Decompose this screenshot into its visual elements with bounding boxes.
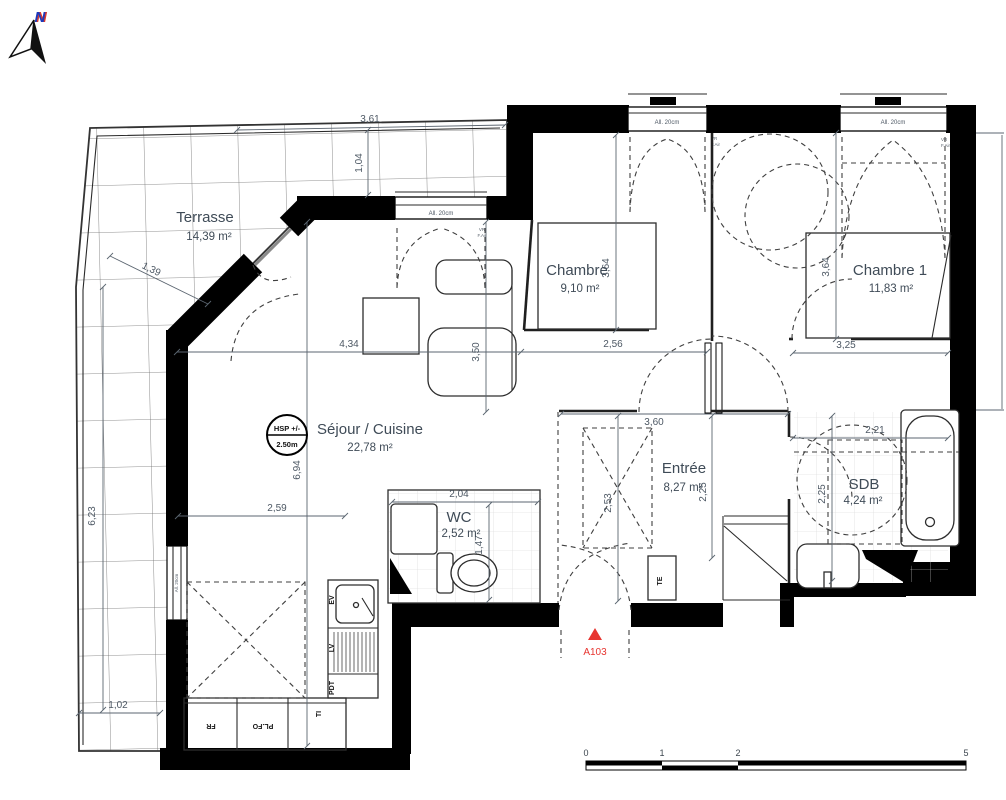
dim-chambre-width: 2,56 [603, 339, 623, 350]
room-area-terrasse: 14,39 m² [186, 231, 232, 243]
closet-cross-entree [583, 428, 652, 548]
north-letter: N [35, 9, 47, 26]
north-arrow: N N [10, 9, 48, 64]
svg-text:3,64: 3,64 [821, 257, 832, 277]
kitchen-oven-label: PL.FO [252, 722, 273, 729]
scale-tick-0: 0 [583, 748, 588, 758]
window-sill-label: All. 20cm [429, 211, 454, 217]
room-area-wc: 2,52 m² [442, 528, 481, 540]
svg-text:1,02: 1,02 [108, 700, 128, 711]
svg-text:1,04: 1,04 [354, 153, 365, 173]
room-area-sdb: 4,24 m² [844, 495, 883, 507]
svg-text:3,61: 3,61 [360, 114, 380, 125]
north-arrow-outline [10, 20, 34, 57]
room-area-chambre: 9,10 m² [561, 283, 600, 295]
ceiling-height-badge: HSP +/- 2.50m [267, 415, 307, 455]
room-label-terrasse: Terrasse [176, 209, 234, 226]
kitchen-sink [336, 585, 374, 623]
dim-sejour-depth: 3,50 [471, 219, 489, 415]
svg-text:2,04: 2,04 [449, 489, 469, 500]
kitchen-hob-label: TI [316, 711, 323, 717]
hsp-line2: 2.50m [276, 440, 298, 449]
room-label-wc: WC [447, 509, 472, 526]
svg-text:2,25: 2,25 [817, 484, 828, 504]
washbasin-sdb [797, 544, 859, 588]
floor-plan-page: N N All. 20cm [0, 0, 1006, 800]
svg-text:4,34: 4,34 [339, 339, 359, 350]
kitchen-dishwasher-label: LV [329, 643, 336, 652]
dim-sejour-width: 4,34 2,56 [174, 339, 710, 355]
kitchen-fridge-label: FR [206, 722, 215, 729]
scale-bar: 0 1 2 5 [583, 748, 968, 770]
svg-text:2,21: 2,21 [865, 425, 885, 436]
scale-tick-2: 2 [735, 748, 740, 758]
scale-tick-5: 5 [963, 748, 968, 758]
room-area-entree: 8,27 m² [664, 482, 703, 494]
room-area-sejour: 22,78 m² [347, 442, 393, 454]
window-sill-label: All. 20cm [881, 120, 906, 126]
electrical-label: TE [657, 576, 664, 585]
room-label-sejour: Séjour / Cuisine [317, 421, 423, 438]
closet-cross-sejour [187, 582, 305, 698]
dim-chambre-depth: 3,64 [601, 132, 619, 333]
hsp-line1: HSP +/- [274, 424, 301, 433]
window-sill-label: All. 20cm [655, 120, 680, 126]
window-terrace-west: All. 20cm [167, 546, 187, 620]
window-sejour-north: All. 20cm VR F.Air [395, 192, 487, 238]
svg-text:2,53: 2,53 [603, 493, 614, 513]
sofa-back [436, 260, 512, 294]
apartment-id: A103 [583, 647, 607, 658]
room-label-entree: Entrée [662, 460, 706, 477]
floor-plan: N N All. 20cm [0, 0, 1006, 800]
dim-sejour-height: 6,94 [292, 219, 310, 749]
entrance-triangle [588, 628, 602, 640]
kitchen-worktop-label: PDT [329, 680, 336, 695]
svg-text:6,23: 6,23 [87, 506, 98, 526]
room-label-chambre1: Chambre 1 [853, 262, 927, 279]
room-label-chambre: Chambre [546, 262, 608, 279]
svg-text:3,50: 3,50 [471, 342, 482, 362]
bathtub [901, 410, 959, 546]
vent-label: F.Air [941, 143, 951, 148]
sejour-furniture [363, 260, 516, 396]
dim-chambre1-depth: 3,64 [821, 130, 839, 342]
dim-hall-width: 3,60 [558, 411, 791, 428]
dishwasher-hatch [334, 632, 374, 672]
dim-chambre1-width: 3,25 [790, 340, 951, 356]
svg-text:2,59: 2,59 [267, 503, 287, 514]
washbasin-wc [391, 504, 437, 554]
svg-text:3,60: 3,60 [644, 417, 664, 428]
dim-sejour-lower: 2,59 [175, 503, 348, 519]
svg-text:3,25: 3,25 [836, 340, 856, 351]
svg-text:6,94: 6,94 [292, 460, 303, 480]
context-lines [976, 133, 1004, 410]
kitchen-counter: FR PL.FO TI EV LV PDT [184, 580, 378, 750]
dim-hall-depth: 2,53 [603, 413, 621, 604]
kitchen-sink-label: EV [329, 595, 336, 605]
room-area-chambre1: 11,83 m² [869, 283, 914, 295]
entrance-marker: A103 [583, 628, 607, 658]
coffee-table [363, 298, 419, 354]
scale-tick-1: 1 [659, 748, 664, 758]
room-label-sdb: SDB [849, 476, 880, 493]
window-sill-label: All. 20cm [174, 574, 179, 593]
electrical-closet: TE [648, 556, 676, 600]
